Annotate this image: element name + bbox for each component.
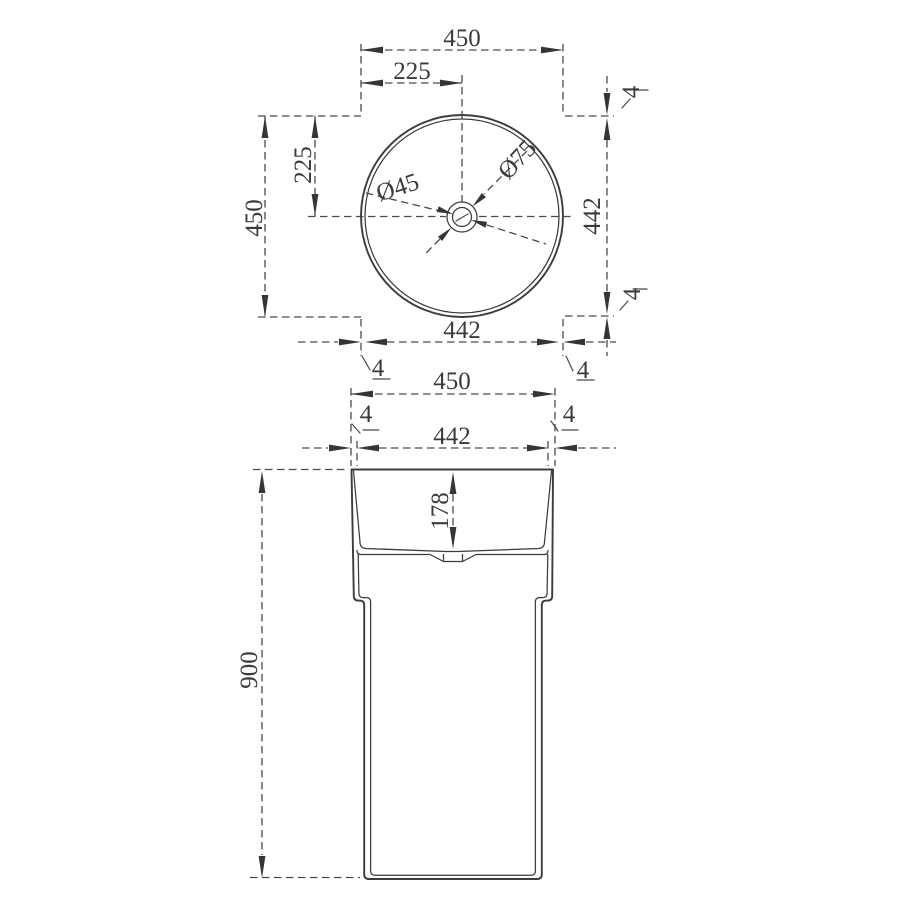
arrow-right-icon	[329, 445, 351, 452]
top-view: 450 225 450 225	[241, 25, 648, 384]
dim-label-rim-top: 4	[618, 85, 645, 98]
dim-label-top-width-total: 450	[443, 25, 481, 52]
dim-label-total-height: 900	[236, 651, 263, 689]
dim-left-height-half: 225	[290, 116, 318, 216]
dim-label-rim-bottom: 4	[619, 287, 646, 300]
dim-label-right-inner-height: 442	[579, 197, 606, 235]
arrow-left-icon	[365, 339, 387, 346]
dim-label-drain-inner: Ø45	[373, 168, 422, 207]
arrow-left-icon	[351, 391, 373, 398]
arrow-down-icon	[259, 856, 266, 878]
arrow-down-icon	[604, 93, 611, 115]
dim-label-top-width-half: 225	[393, 58, 431, 85]
front-view-top-dimensions: 450 4 4 442	[302, 368, 616, 466]
pedestal-basin-technical-drawing: 450 225 450 225	[0, 0, 900, 900]
arrow-up-icon	[312, 116, 319, 138]
basin-inner-wall-left	[354, 471, 361, 542]
arrow-right-icon	[537, 339, 559, 346]
arrow-up-icon	[450, 472, 457, 494]
dim-top-width-half: 225	[361, 58, 462, 86]
dim-total-height: 900	[236, 470, 360, 879]
basin-underside-line	[357, 551, 548, 562]
dim-drain-outer-diameter: Ø75	[425, 135, 542, 254]
dim-right-inner-height: 442 4 4	[579, 85, 648, 339]
arrow-right-icon	[527, 445, 549, 452]
arrow-up-icon	[262, 116, 269, 138]
front-view: 178 900	[236, 470, 553, 880]
arrow-down-icon	[312, 194, 319, 216]
dim-drain-inner-diameter: Ø45	[366, 168, 546, 244]
arrow-up-icon	[604, 118, 611, 140]
dim-front-rim-left: 4	[352, 401, 379, 433]
arrow-up-icon	[604, 317, 611, 339]
dim-label-left-height-half: 225	[290, 146, 317, 184]
dim-label-basin-depth: 178	[427, 492, 454, 530]
arrow-left-icon	[361, 47, 383, 54]
pedestal-inner-contour	[358, 555, 548, 876]
drawing-page: 450 225 450 225	[0, 0, 900, 900]
dim-label-rim-right: 4	[577, 357, 590, 384]
arrow-right-icon	[541, 47, 563, 54]
arrow-down-icon	[604, 292, 611, 314]
dim-basin-depth: 178	[427, 472, 456, 549]
arrow-right-icon	[339, 339, 361, 346]
arrow-right-icon	[440, 80, 462, 87]
drain-boss-lines	[444, 555, 463, 562]
arrow-down-left-icon	[473, 193, 486, 206]
arrow-left-icon	[361, 80, 383, 87]
dim-top-width-total: 450	[361, 25, 563, 53]
arrow-left-icon	[563, 339, 585, 346]
dim-label-front-rim-left: 4	[360, 401, 373, 428]
dim-label-left-height-total: 450	[241, 199, 268, 237]
dim-label-front-width-total: 450	[433, 368, 471, 395]
dim-label-front-inner-width: 442	[433, 423, 471, 450]
dim-label-bottom-inner-width: 442	[443, 317, 481, 344]
dim-label-rim-left: 4	[372, 355, 385, 382]
arrow-right-icon	[533, 391, 555, 398]
arrow-up-right-icon	[438, 228, 451, 241]
basin-inner-wall-right	[545, 471, 552, 542]
arrow-left-icon	[357, 445, 379, 452]
dim-label-front-rim-right: 4	[563, 401, 576, 428]
arrow-up-icon	[259, 471, 266, 493]
dim-left-height-total: 450	[241, 116, 268, 317]
arrow-down-icon	[262, 295, 269, 317]
arrow-left-icon	[555, 445, 577, 452]
drain-center-tick	[456, 214, 468, 221]
